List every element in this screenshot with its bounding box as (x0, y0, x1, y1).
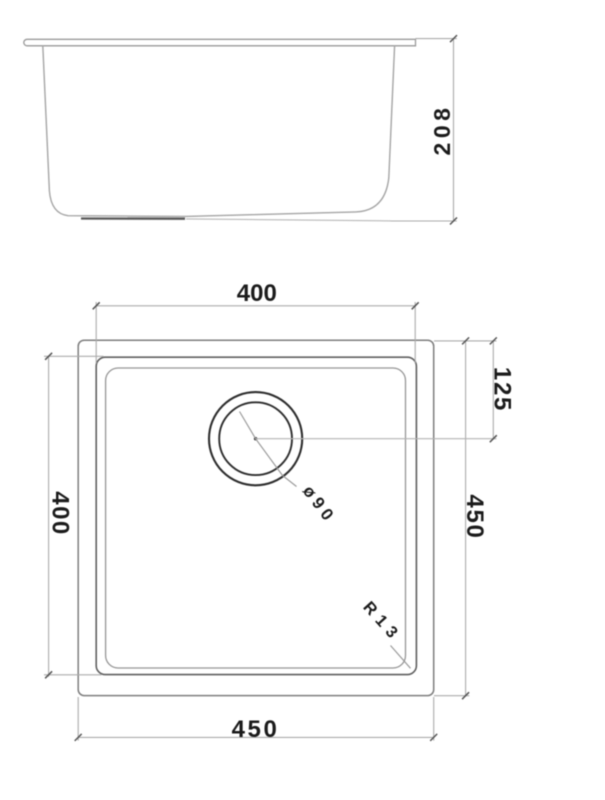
svg-text:450: 450 (232, 716, 280, 743)
svg-text:125: 125 (488, 367, 515, 412)
svg-text:208: 208 (429, 104, 455, 156)
svg-text:400: 400 (47, 491, 74, 536)
svg-text:ø90: ø90 (299, 482, 340, 528)
svg-text:450: 450 (461, 494, 488, 539)
svg-text:R13: R13 (359, 598, 405, 646)
svg-text:400: 400 (237, 280, 277, 307)
